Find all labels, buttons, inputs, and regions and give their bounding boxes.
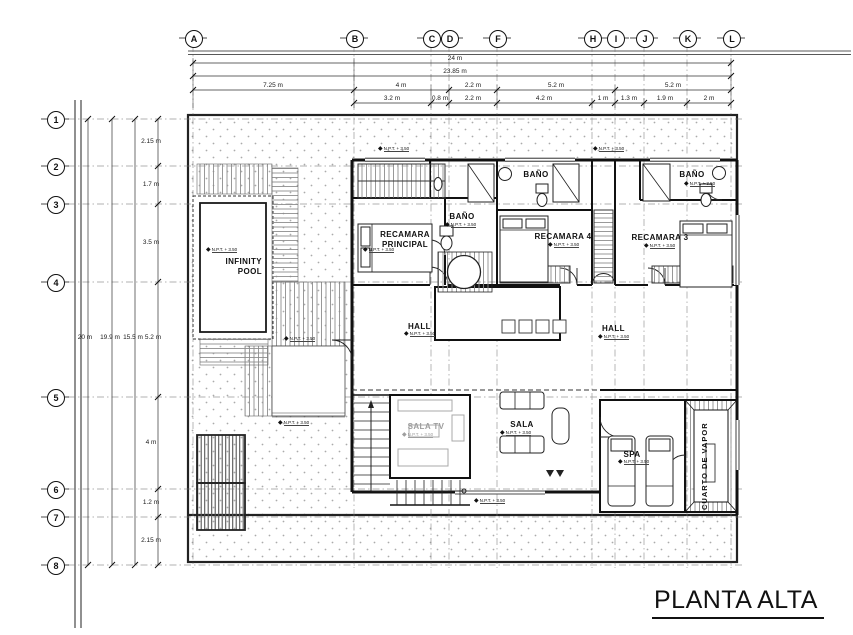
npt-text: N.P.T. + 3.50 xyxy=(384,146,410,152)
room-label-recamara-3: RECAMARA 3 xyxy=(631,233,688,242)
npt-text: N.P.T. + 3.50 xyxy=(408,432,434,438)
npt-text: N.P.T. + 3.50 xyxy=(369,247,395,253)
npt-text: N.P.T. + 3.50 xyxy=(290,336,316,342)
npt-text: N.P.T. + 3.50 xyxy=(410,331,436,337)
level-diamond-icon: ◆ xyxy=(445,223,450,228)
louver-block xyxy=(197,435,245,530)
grid-row-8: 8 xyxy=(47,557,65,575)
dim-label: 1.3 m xyxy=(621,95,637,102)
room-label-cuarto-de-vapor: CUARTO DE VAPOR xyxy=(700,418,709,510)
level-diamond-icon: ◆ xyxy=(363,248,368,253)
dim-label: 5.2 m xyxy=(665,82,681,89)
npt-text: N.P.T. + 3.50 xyxy=(650,243,676,249)
grid-row-1: 1 xyxy=(47,111,65,129)
room-label-hall-1: HALL xyxy=(408,322,431,331)
dim-label: 2.15 m xyxy=(141,138,161,145)
npt-text: N.P.T. + 3.50 xyxy=(506,430,532,436)
level-marker: ◆N.P.T. + 3.50 xyxy=(402,432,433,438)
level-diamond-icon: ◆ xyxy=(618,460,623,465)
room-label-hall-2: HALL xyxy=(602,324,625,333)
level-marker: ◆N.P.T. + 3.50 xyxy=(445,222,476,228)
grid-col-a: A xyxy=(185,30,203,48)
grid-col-j: J xyxy=(636,30,654,48)
dim-label: 4 m xyxy=(146,439,157,446)
npt-text: N.P.T. + 3.50 xyxy=(690,181,716,187)
dim-top-subtotal: 23.85 m xyxy=(443,68,467,75)
dim-top-total: 24 m xyxy=(448,55,462,62)
grid-col-f: F xyxy=(489,30,507,48)
grid-col-b: B xyxy=(346,30,364,48)
level-marker: ◆N.P.T. + 3.50 xyxy=(598,334,629,340)
grid-col-h: H xyxy=(584,30,602,48)
dim-left-total: 19.9 m xyxy=(100,334,120,341)
level-marker: ◆N.P.T. + 3.50 xyxy=(404,331,435,337)
dim-left-total: 20 m xyxy=(78,334,92,341)
level-marker: ◆N.P.T. + 3.50 xyxy=(378,146,409,152)
level-diamond-icon: ◆ xyxy=(500,431,505,436)
level-marker: ◆N.P.T. + 3.50 xyxy=(593,146,624,152)
dim-label: 1.7 m xyxy=(143,181,159,188)
level-marker: ◆N.P.T. + 3.50 xyxy=(284,336,315,342)
grid-col-c: C xyxy=(423,30,441,48)
dim-label: 5.2 m xyxy=(548,82,564,89)
level-diamond-icon: ◆ xyxy=(684,182,689,187)
level-diamond-icon: ◆ xyxy=(474,499,479,504)
dim-label: 2.2 m xyxy=(465,95,481,102)
dim-label: 3.5 m xyxy=(143,239,159,246)
dim-label: 1.9 m xyxy=(657,95,673,102)
room-label-bano-3: BAÑO xyxy=(679,170,704,179)
npt-text: N.P.T. + 3.50 xyxy=(599,146,625,152)
level-diamond-icon: ◆ xyxy=(644,244,649,249)
grid-row-3: 3 xyxy=(47,196,65,214)
plan-title: PLANTA ALTA xyxy=(652,586,824,619)
level-diamond-icon: ◆ xyxy=(548,243,553,248)
grid-row-7: 7 xyxy=(47,509,65,527)
npt-text: N.P.T. + 3.50 xyxy=(604,334,630,340)
level-diamond-icon: ◆ xyxy=(284,337,289,342)
npt-text: N.P.T. + 3.50 xyxy=(284,420,310,426)
dim-label: 1.2 m xyxy=(143,499,159,506)
level-diamond-icon: ◆ xyxy=(598,335,603,340)
level-diamond-icon: ◆ xyxy=(593,147,598,152)
level-diamond-icon: ◆ xyxy=(404,332,409,337)
npt-text: N.P.T. + 3.50 xyxy=(212,247,238,253)
room-label-recamara-4: RECAMARA 4 xyxy=(534,232,591,241)
npt-text: N.P.T. + 3.50 xyxy=(554,242,580,248)
npt-text: N.P.T. + 3.50 xyxy=(624,459,650,465)
dim-label: 7.25 m xyxy=(263,82,283,89)
dim-label: 5.2 m xyxy=(145,334,161,341)
dim-label: 2.15 m xyxy=(141,537,161,544)
floor-plan-canvas: A B C D F H I J K L 1 2 3 4 5 6 7 8 24 m… xyxy=(0,0,853,635)
level-marker: ◆N.P.T. + 3.50 xyxy=(278,420,309,426)
dim-label: 1 m xyxy=(598,95,609,102)
room-label-sala-tv: SALA TV xyxy=(408,422,445,431)
room-label-spa: SPA xyxy=(623,450,640,459)
dim-label: 2 m xyxy=(704,95,715,102)
grid-row-4: 4 xyxy=(47,274,65,292)
dim-label: 4.2 m xyxy=(536,95,552,102)
room-label-bano-2: BAÑO xyxy=(523,170,548,179)
dim-label: 0.8 m xyxy=(432,95,448,102)
plan-linework xyxy=(0,0,853,635)
room-label-sala: SALA xyxy=(510,420,533,429)
dim-label: 3.2 m xyxy=(384,95,400,102)
grid-row-2: 2 xyxy=(47,158,65,176)
level-marker: ◆N.P.T. + 3.50 xyxy=(618,459,649,465)
grid-row-5: 5 xyxy=(47,389,65,407)
level-diamond-icon: ◆ xyxy=(402,433,407,438)
level-diamond-icon: ◆ xyxy=(206,248,211,253)
level-diamond-icon: ◆ xyxy=(378,147,383,152)
room-label-infinity-pool: INFINITY POOL xyxy=(206,257,262,277)
grid-col-k: K xyxy=(679,30,697,48)
grid-col-i: I xyxy=(607,30,625,48)
dim-left-total: 15.5 m xyxy=(123,334,143,341)
level-marker: ◆N.P.T. + 3.50 xyxy=(548,242,579,248)
level-marker: ◆N.P.T. + 3.50 xyxy=(363,247,394,253)
npt-text: N.P.T. + 3.50 xyxy=(480,498,506,504)
dim-label: 4 m xyxy=(396,82,407,89)
dim-label: 2.2 m xyxy=(465,82,481,89)
baja-arrows-icon xyxy=(546,470,564,477)
level-diamond-icon: ◆ xyxy=(278,421,283,426)
level-marker: ◆N.P.T. + 3.50 xyxy=(644,243,675,249)
npt-text: N.P.T. + 3.50 xyxy=(451,222,477,228)
level-marker: ◆N.P.T. + 3.50 xyxy=(474,498,505,504)
steam-room xyxy=(685,400,737,512)
grid-row-6: 6 xyxy=(47,481,65,499)
grid-col-l: L xyxy=(723,30,741,48)
level-marker: ◆N.P.T. + 3.50 xyxy=(684,181,715,187)
level-marker: ◆N.P.T. + 3.50 xyxy=(500,430,531,436)
room-label-bano-1: BAÑO xyxy=(449,212,474,221)
level-marker: ◆N.P.T. + 3.50 xyxy=(206,247,237,253)
grid-col-d: D xyxy=(441,30,459,48)
